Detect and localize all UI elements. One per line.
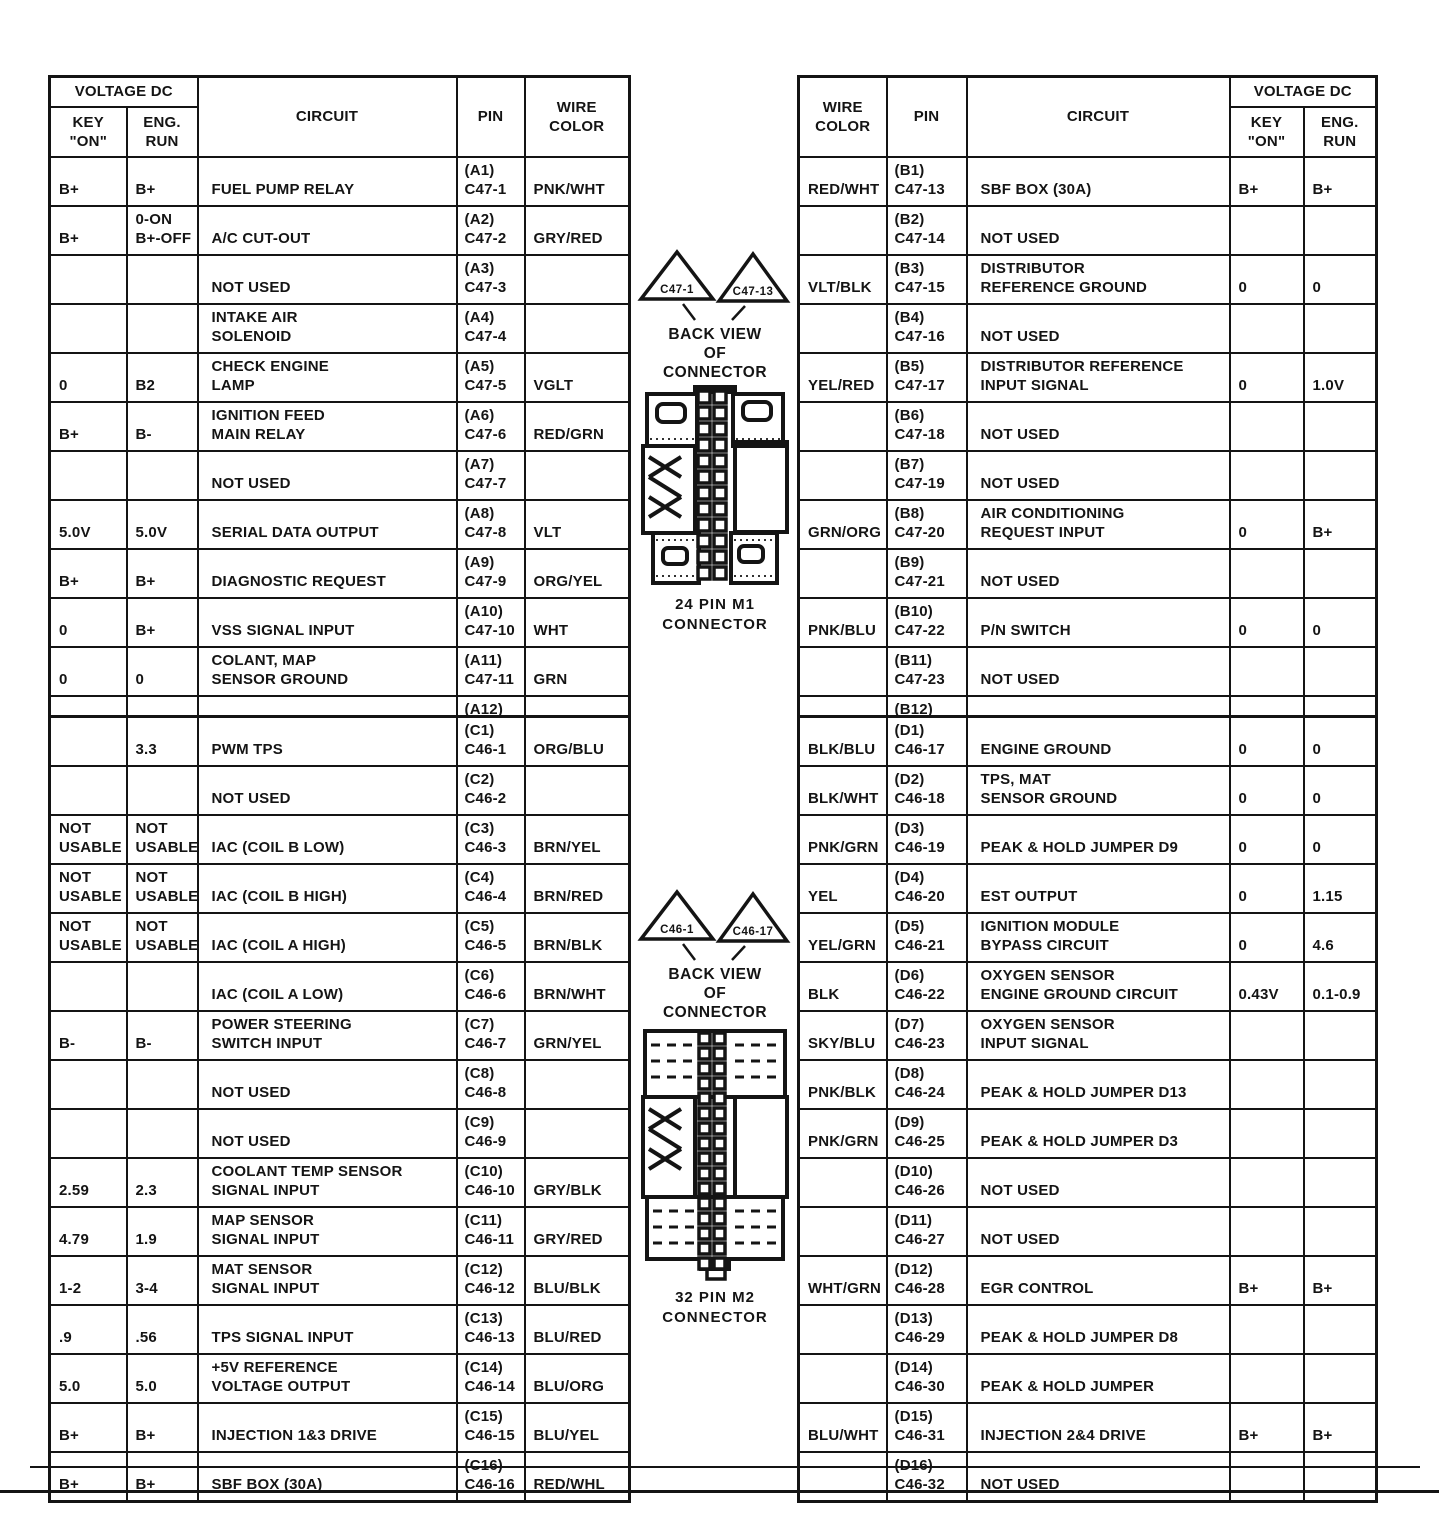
cell-wire: VLT [525, 500, 630, 549]
pin-row: (B11) C47-23NOT USED [799, 647, 1377, 696]
cell-eng-run: B- [127, 1011, 198, 1060]
cell-key-on [1230, 1011, 1304, 1060]
cell-eng-run: B+ [1304, 1256, 1377, 1305]
cell-key-on: B+ [1230, 1256, 1304, 1305]
pin-row: VLT/BLK(B3) C47-15DISTRIBUTOR REFERENCE … [799, 255, 1377, 304]
m2-triangle-left-label: C46-1 [660, 924, 694, 936]
cell-circuit: NOT USED [967, 549, 1230, 598]
pin-row: B+B+FUEL PUMP RELAY(A1) C47-1PNK/WHT [50, 157, 630, 206]
cell-wire: PNK/BLK [799, 1060, 887, 1109]
cell-wire: YEL/GRN [799, 913, 887, 962]
cell-pin: (C9) C46-9 [457, 1109, 525, 1158]
cell-pin: (C4) C46-4 [457, 864, 525, 913]
cell-circuit: FUEL PUMP RELAY [198, 157, 457, 206]
cell-key-on: 2.59 [50, 1158, 127, 1207]
cell-key-on [1230, 1354, 1304, 1403]
cell-eng-run: 0-ON B+-OFF [127, 206, 198, 255]
cell-key-on: 5.0V [50, 500, 127, 549]
cell-circuit: NOT USED [967, 304, 1230, 353]
cell-circuit: NOT USED [967, 451, 1230, 500]
m2-pin1-pin17-triangles: C46-1 C46-17 [633, 884, 797, 962]
cell-key-on: 0.43V [1230, 962, 1304, 1011]
cell-pin: (D4) C46-20 [887, 864, 967, 913]
pin-row: NOT USED(A3) C47-3 [50, 255, 630, 304]
pin-row: (B7) C47-19NOT USED [799, 451, 1377, 500]
cell-key-on: 0 [1230, 500, 1304, 549]
cell-eng-run [127, 766, 198, 815]
cell-pin: (C11) C46-11 [457, 1207, 525, 1256]
cell-eng-run: B+ [1304, 500, 1377, 549]
cell-key-on [50, 1109, 127, 1158]
m1-pin1-pin13-triangles: C47-1 C47-13 [633, 244, 797, 322]
cell-wire: BRN/RED [525, 864, 630, 913]
cell-circuit: IAC (COIL A HIGH) [198, 913, 457, 962]
cell-wire [799, 304, 887, 353]
cell-eng-run: NOT USABLE [127, 913, 198, 962]
cell-pin: (B1) C47-13 [887, 157, 967, 206]
cell-eng-run: 3-4 [127, 1256, 198, 1305]
m1-connector-left-table: VOLTAGE DC CIRCUIT PIN WIRE COLOR KEY "O… [48, 75, 631, 747]
cell-wire: PNK/WHT [525, 157, 630, 206]
cell-pin: (D16) C46-32 [887, 1452, 967, 1502]
cell-key-on [1230, 402, 1304, 451]
cell-circuit: DISTRIBUTOR REFERENCE INPUT SIGNAL [967, 353, 1230, 402]
cell-key-on: .9 [50, 1305, 127, 1354]
key-on-header: KEY "ON" [1230, 107, 1304, 157]
pin-row: 00COLANT, MAP SENSOR GROUND(A11) C47-11G… [50, 647, 630, 696]
cell-pin: (D13) C46-29 [887, 1305, 967, 1354]
cell-pin: (B6) C47-18 [887, 402, 967, 451]
pin-row: (B2) C47-14NOT USED [799, 206, 1377, 255]
cell-circuit: NOT USED [967, 1207, 1230, 1256]
pin-row: (B4) C47-16NOT USED [799, 304, 1377, 353]
cell-wire [525, 1109, 630, 1158]
cell-key-on [50, 962, 127, 1011]
cell-circuit: SBF BOX (30A) [967, 157, 1230, 206]
cell-wire [799, 451, 887, 500]
cell-pin: (D1) C46-17 [887, 717, 967, 767]
cell-pin: (C5) C46-5 [457, 913, 525, 962]
pin-row: WHT/GRN(D12) C46-28EGR CONTROLB+B+ [799, 1256, 1377, 1305]
cell-circuit: IGNITION FEED MAIN RELAY [198, 402, 457, 451]
pin-row: NOT USABLENOT USABLEIAC (COIL A HIGH)(C5… [50, 913, 630, 962]
m2-connector-drawing [635, 1025, 795, 1283]
cell-circuit: OXYGEN SENSOR ENGINE GROUND CIRCUIT [967, 962, 1230, 1011]
cell-circuit: INJECTION 1&3 DRIVE [198, 1403, 457, 1452]
cell-circuit: P/N SWITCH [967, 598, 1230, 647]
cell-pin: (D12) C46-28 [887, 1256, 967, 1305]
cell-key-on [1230, 1207, 1304, 1256]
cell-key-on: NOT USABLE [50, 864, 127, 913]
cell-wire: BLU/BLK [525, 1256, 630, 1305]
cell-circuit: NOT USED [967, 1452, 1230, 1502]
cell-key-on [1230, 206, 1304, 255]
cell-wire: BLU/ORG [525, 1354, 630, 1403]
cell-eng-run: NOT USABLE [127, 815, 198, 864]
cell-key-on: B+ [50, 1452, 127, 1502]
pin-row: (D13) C46-29PEAK & HOLD JUMPER D8 [799, 1305, 1377, 1354]
bottom-rule-thin [30, 1466, 1420, 1468]
cell-wire [799, 647, 887, 696]
m1-triangle-left-label: C47-1 [660, 284, 694, 296]
cell-eng-run: 5.0 [127, 1354, 198, 1403]
cell-eng-run: 0 [127, 647, 198, 696]
cell-wire: BLU/YEL [525, 1403, 630, 1452]
pin-row: NOT USED(C2) C46-2 [50, 766, 630, 815]
cell-wire [799, 1354, 887, 1403]
cell-circuit: PEAK & HOLD JUMPER D8 [967, 1305, 1230, 1354]
cell-pin: (C1) C46-1 [457, 717, 525, 767]
cell-pin: (A1) C47-1 [457, 157, 525, 206]
cell-eng-run [127, 304, 198, 353]
cell-circuit: +5V REFERENCE VOLTAGE OUTPUT [198, 1354, 457, 1403]
cell-circuit: NOT USED [198, 255, 457, 304]
cell-wire [799, 402, 887, 451]
cell-key-on: B+ [50, 206, 127, 255]
cell-circuit: DISTRIBUTOR REFERENCE GROUND [967, 255, 1230, 304]
cell-wire [525, 255, 630, 304]
cell-pin: (D14) C46-30 [887, 1354, 967, 1403]
cell-wire [799, 549, 887, 598]
pin-row: 2.592.3COOLANT TEMP SENSOR SIGNAL INPUT(… [50, 1158, 630, 1207]
cell-wire: BLK/WHT [799, 766, 887, 815]
cell-wire [799, 1207, 887, 1256]
cell-pin: (A5) C47-5 [457, 353, 525, 402]
cell-circuit: COOLANT TEMP SENSOR SIGNAL INPUT [198, 1158, 457, 1207]
connector-figure-m1: C47-1 C47-13 BACK VIEW OF CONNECTOR [633, 244, 797, 635]
pin-row: (B9) C47-21NOT USED [799, 549, 1377, 598]
pin-row: 3.3PWM TPS(C1) C46-1ORG/BLU [50, 717, 630, 767]
m1-triangle-right-label: C47-13 [733, 286, 774, 298]
cell-eng-run: .56 [127, 1305, 198, 1354]
pin-row: B+B+INJECTION 1&3 DRIVE(C15) C46-15BLU/Y… [50, 1403, 630, 1452]
cell-eng-run: NOT USABLE [127, 864, 198, 913]
cell-wire: GRY/RED [525, 206, 630, 255]
cell-eng-run: B+ [1304, 157, 1377, 206]
cell-eng-run [1304, 1158, 1377, 1207]
cell-key-on: 0 [1230, 255, 1304, 304]
cell-circuit: OXYGEN SENSOR INPUT SIGNAL [967, 1011, 1230, 1060]
cell-pin: (C6) C46-6 [457, 962, 525, 1011]
cell-wire: GRY/RED [525, 1207, 630, 1256]
cell-key-on [50, 451, 127, 500]
cell-wire: BRN/BLK [525, 913, 630, 962]
pin-row: NOT USABLENOT USABLEIAC (COIL B LOW)(C3)… [50, 815, 630, 864]
m1-connector-right-table: WIRE COLOR PIN CIRCUIT VOLTAGE DC KEY "O… [797, 75, 1378, 747]
cell-key-on [50, 717, 127, 767]
cell-wire: GRN/YEL [525, 1011, 630, 1060]
pin-row: (D11) C46-27NOT USED [799, 1207, 1377, 1256]
cell-eng-run: 0 [1304, 717, 1377, 767]
cell-wire: RED/WHT [799, 157, 887, 206]
cell-eng-run [1304, 1305, 1377, 1354]
m2-pin-grid [699, 1033, 725, 1269]
cell-eng-run: B+ [127, 549, 198, 598]
cell-eng-run: 0.1-0.9 [1304, 962, 1377, 1011]
cell-wire: VLT/BLK [799, 255, 887, 304]
cell-pin: (C13) C46-13 [457, 1305, 525, 1354]
cell-pin: (C10) C46-10 [457, 1158, 525, 1207]
cell-pin: (C16) C46-16 [457, 1452, 525, 1502]
cell-eng-run [1304, 402, 1377, 451]
pin-row: NOT USED(A7) C47-7 [50, 451, 630, 500]
cell-key-on: 0 [1230, 353, 1304, 402]
pin-row: .9.56TPS SIGNAL INPUT(C13) C46-13BLU/RED [50, 1305, 630, 1354]
cell-circuit: COLANT, MAP SENSOR GROUND [198, 647, 457, 696]
cell-wire: GRY/BLK [525, 1158, 630, 1207]
pin-row: NOT USABLENOT USABLEIAC (COIL B HIGH)(C4… [50, 864, 630, 913]
cell-pin: (C12) C46-12 [457, 1256, 525, 1305]
cell-wire: YEL [799, 864, 887, 913]
cell-key-on [1230, 1158, 1304, 1207]
pin-row: YEL(D4) C46-20EST OUTPUT01.15 [799, 864, 1377, 913]
cell-pin: (B7) C47-19 [887, 451, 967, 500]
cell-eng-run [1304, 451, 1377, 500]
cell-key-on: 0 [50, 353, 127, 402]
cell-circuit: NOT USED [198, 766, 457, 815]
cell-wire: RED/GRN [525, 402, 630, 451]
pin-row: 5.05.0+5V REFERENCE VOLTAGE OUTPUT(C14) … [50, 1354, 630, 1403]
pin-row: B-B-POWER STEERING SWITCH INPUT(C7) C46-… [50, 1011, 630, 1060]
cell-eng-run [127, 255, 198, 304]
cell-eng-run [127, 962, 198, 1011]
cell-wire [525, 304, 630, 353]
cell-circuit: INTAKE AIR SOLENOID [198, 304, 457, 353]
cell-key-on: 1-2 [50, 1256, 127, 1305]
cell-pin: (A2) C47-2 [457, 206, 525, 255]
cell-wire [525, 451, 630, 500]
cell-pin: (D10) C46-26 [887, 1158, 967, 1207]
pin-row: INTAKE AIR SOLENOID(A4) C47-4 [50, 304, 630, 353]
m1-connector-drawing [635, 385, 795, 590]
cell-pin: (B2) C47-14 [887, 206, 967, 255]
connector-figure-m2: C46-1 C46-17 BACK VIEW OF CONNECTOR [633, 884, 797, 1328]
cell-circuit: PEAK & HOLD JUMPER [967, 1354, 1230, 1403]
cell-eng-run: B- [127, 402, 198, 451]
cell-eng-run: 2.3 [127, 1158, 198, 1207]
pin-row: (D14) C46-30PEAK & HOLD JUMPER [799, 1354, 1377, 1403]
cell-wire: ORG/YEL [525, 549, 630, 598]
cell-pin: (A11) C47-11 [457, 647, 525, 696]
cell-pin: (B9) C47-21 [887, 549, 967, 598]
cell-key-on [1230, 647, 1304, 696]
cell-wire: WHT/GRN [799, 1256, 887, 1305]
cell-eng-run: 1.9 [127, 1207, 198, 1256]
cell-circuit: NOT USED [198, 451, 457, 500]
cell-wire: PNK/GRN [799, 815, 887, 864]
m1-back-view-caption: BACK VIEW OF CONNECTOR [663, 325, 767, 382]
cell-eng-run [127, 1060, 198, 1109]
cell-key-on: B+ [1230, 1403, 1304, 1452]
cell-key-on: 0 [50, 598, 127, 647]
pin-row: NOT USED(C9) C46-9 [50, 1109, 630, 1158]
m2-triangle-right-label: C46-17 [733, 926, 774, 938]
pin-row: 0B2CHECK ENGINE LAMP(A5) C47-5VGLT [50, 353, 630, 402]
cell-key-on [1230, 451, 1304, 500]
cell-eng-run: B+ [1304, 1403, 1377, 1452]
cell-pin: (A10) C47-10 [457, 598, 525, 647]
cell-wire: ORG/BLU [525, 717, 630, 767]
cell-eng-run [1304, 304, 1377, 353]
cell-pin: (A4) C47-4 [457, 304, 525, 353]
cell-key-on [50, 304, 127, 353]
pin-row: PNK/GRN(D9) C46-25PEAK & HOLD JUMPER D3 [799, 1109, 1377, 1158]
m1-connector-label: 24 PIN M1 CONNECTOR [662, 595, 767, 635]
cell-circuit: NOT USED [967, 1158, 1230, 1207]
cell-pin: (D5) C46-21 [887, 913, 967, 962]
cell-wire: GRN [525, 647, 630, 696]
cell-pin: (D2) C46-18 [887, 766, 967, 815]
pin-row: B+0-ON B+-OFFA/C CUT-OUT(A2) C47-2GRY/RE… [50, 206, 630, 255]
cell-key-on [1230, 304, 1304, 353]
pin-row: YEL/RED(B5) C47-17DISTRIBUTOR REFERENCE … [799, 353, 1377, 402]
cell-circuit: IAC (COIL A LOW) [198, 962, 457, 1011]
pin-header: PIN [457, 77, 525, 157]
cell-eng-run: B2 [127, 353, 198, 402]
cell-key-on: 5.0 [50, 1354, 127, 1403]
cell-key-on: 0 [1230, 717, 1304, 767]
cell-key-on: 0 [1230, 864, 1304, 913]
cell-wire: BLK [799, 962, 887, 1011]
cell-eng-run: 4.6 [1304, 913, 1377, 962]
cell-eng-run [1304, 549, 1377, 598]
cell-pin: (D11) C46-27 [887, 1207, 967, 1256]
cell-pin: (B5) C47-17 [887, 353, 967, 402]
cell-wire [799, 1158, 887, 1207]
pin-row: (D10) C46-26NOT USED [799, 1158, 1377, 1207]
cell-wire [799, 206, 887, 255]
pin-row: 1-23-4MAT SENSOR SIGNAL INPUT(C12) C46-1… [50, 1256, 630, 1305]
cell-key-on: B- [50, 1011, 127, 1060]
cell-wire: BLK/BLU [799, 717, 887, 767]
cell-pin: (D6) C46-22 [887, 962, 967, 1011]
wire-color-header: WIRE COLOR [525, 77, 630, 157]
cell-wire [799, 1452, 887, 1502]
cell-pin: (B8) C47-20 [887, 500, 967, 549]
pin-row: B+B+DIAGNOSTIC REQUEST(A9) C47-9ORG/YEL [50, 549, 630, 598]
cell-eng-run [1304, 1060, 1377, 1109]
cell-wire: YEL/RED [799, 353, 887, 402]
cell-circuit: TPS, MAT SENSOR GROUND [967, 766, 1230, 815]
pin-row: (D16) C46-32NOT USED [799, 1452, 1377, 1502]
cell-key-on [50, 255, 127, 304]
cell-eng-run [1304, 1354, 1377, 1403]
pin-row: 5.0V5.0VSERIAL DATA OUTPUT(A8) C47-8VLT [50, 500, 630, 549]
cell-circuit: POWER STEERING SWITCH INPUT [198, 1011, 457, 1060]
cell-key-on: 0 [1230, 598, 1304, 647]
cell-eng-run: 0 [1304, 598, 1377, 647]
cell-wire: PNK/GRN [799, 1109, 887, 1158]
cell-pin: (C15) C46-15 [457, 1403, 525, 1452]
cell-key-on: NOT USABLE [50, 815, 127, 864]
cell-key-on: B+ [50, 402, 127, 451]
pin-header: PIN [887, 77, 967, 157]
cell-eng-run: B+ [127, 1452, 198, 1502]
cell-key-on: B+ [50, 549, 127, 598]
cell-wire: BLU/RED [525, 1305, 630, 1354]
cell-eng-run: 5.0V [127, 500, 198, 549]
cell-pin: (A8) C47-8 [457, 500, 525, 549]
voltage-dc-header: VOLTAGE DC [1230, 77, 1377, 107]
eng-run-header: ENG. RUN [127, 107, 198, 157]
cell-circuit: NOT USED [967, 647, 1230, 696]
eng-run-header: ENG. RUN [1304, 107, 1377, 157]
cell-circuit: DIAGNOSTIC REQUEST [198, 549, 457, 598]
cell-circuit: SBF BOX (30A) [198, 1452, 457, 1502]
cell-eng-run: 3.3 [127, 717, 198, 767]
cell-key-on: NOT USABLE [50, 913, 127, 962]
cell-circuit: CHECK ENGINE LAMP [198, 353, 457, 402]
cell-key-on: 4.79 [50, 1207, 127, 1256]
cell-circuit: A/C CUT-OUT [198, 206, 457, 255]
cell-key-on: B+ [1230, 157, 1304, 206]
pin-row: SKY/BLU(D7) C46-23OXYGEN SENSOR INPUT SI… [799, 1011, 1377, 1060]
cell-eng-run: B+ [127, 598, 198, 647]
cell-circuit: NOT USED [198, 1060, 457, 1109]
pin-row: PNK/BLU(B10) C47-22P/N SWITCH00 [799, 598, 1377, 647]
cell-eng-run: 1.15 [1304, 864, 1377, 913]
pin-row: GRN/ORG(B8) C47-20AIR CONDITIONING REQUE… [799, 500, 1377, 549]
cell-circuit: AIR CONDITIONING REQUEST INPUT [967, 500, 1230, 549]
cell-circuit: PEAK & HOLD JUMPER D13 [967, 1060, 1230, 1109]
cell-pin: (A6) C47-6 [457, 402, 525, 451]
cell-circuit: PWM TPS [198, 717, 457, 767]
cell-pin: (D3) C46-19 [887, 815, 967, 864]
cell-wire: RED/WHL [525, 1452, 630, 1502]
pin-row: YEL/GRN(D5) C46-21IGNITION MODULE BYPASS… [799, 913, 1377, 962]
wire-color-header: WIRE COLOR [799, 77, 887, 157]
cell-pin: (A7) C47-7 [457, 451, 525, 500]
circuit-header: CIRCUIT [967, 77, 1230, 157]
cell-key-on: B+ [50, 1403, 127, 1452]
key-on-header: KEY "ON" [50, 107, 127, 157]
cell-circuit: TPS SIGNAL INPUT [198, 1305, 457, 1354]
cell-pin: (D7) C46-23 [887, 1011, 967, 1060]
cell-circuit: MAP SENSOR SIGNAL INPUT [198, 1207, 457, 1256]
cell-eng-run: 0 [1304, 815, 1377, 864]
cell-circuit: EGR CONTROL [967, 1256, 1230, 1305]
cell-pin: (B11) C47-23 [887, 647, 967, 696]
cell-key-on: 0 [1230, 766, 1304, 815]
cell-key-on: 0 [1230, 815, 1304, 864]
cell-circuit: INJECTION 2&4 DRIVE [967, 1403, 1230, 1452]
pin-row: B+B+SBF BOX (30A)(C16) C46-16RED/WHL [50, 1452, 630, 1502]
cell-key-on [1230, 1109, 1304, 1158]
cell-eng-run [127, 451, 198, 500]
pin-row: PNK/BLK(D8) C46-24PEAK & HOLD JUMPER D13 [799, 1060, 1377, 1109]
cell-wire: PNK/BLU [799, 598, 887, 647]
pin-row: RED/WHT(B1) C47-13SBF BOX (30A)B+B+ [799, 157, 1377, 206]
cell-wire: WHT [525, 598, 630, 647]
voltage-dc-header: VOLTAGE DC [50, 77, 198, 107]
cell-wire: BLU/WHT [799, 1403, 887, 1452]
cell-circuit: ENGINE GROUND [967, 717, 1230, 767]
cell-wire [799, 1305, 887, 1354]
cell-circuit: PEAK & HOLD JUMPER D9 [967, 815, 1230, 864]
cell-key-on [1230, 549, 1304, 598]
cell-pin: (B3) C47-15 [887, 255, 967, 304]
cell-wire: BRN/YEL [525, 815, 630, 864]
cell-eng-run [1304, 1207, 1377, 1256]
cell-eng-run [127, 1109, 198, 1158]
cell-circuit: EST OUTPUT [967, 864, 1230, 913]
cell-pin: (C2) C46-2 [457, 766, 525, 815]
cell-key-on [1230, 1305, 1304, 1354]
cell-pin: (B4) C47-16 [887, 304, 967, 353]
pin-row: B+B-IGNITION FEED MAIN RELAY(A6) C47-6RE… [50, 402, 630, 451]
cell-circuit: PEAK & HOLD JUMPER D3 [967, 1109, 1230, 1158]
cell-pin: (D9) C46-25 [887, 1109, 967, 1158]
